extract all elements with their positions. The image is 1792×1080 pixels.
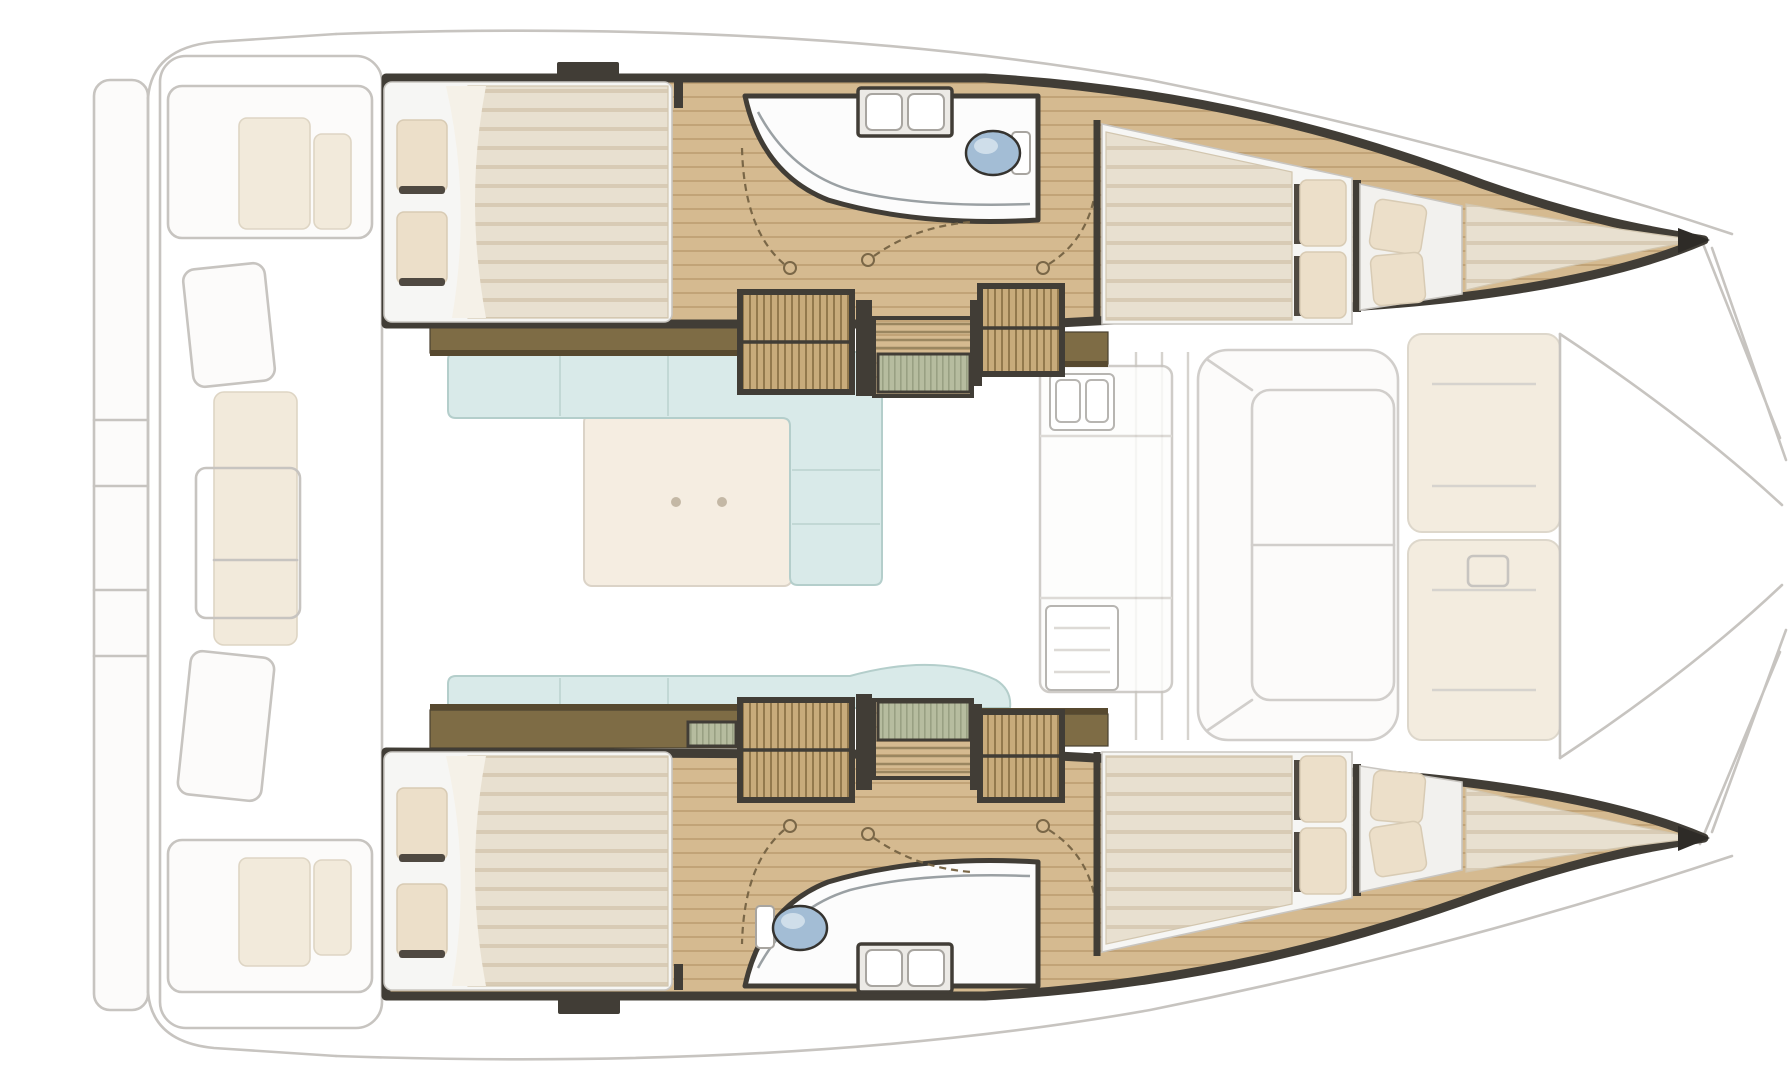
pillow — [1368, 198, 1427, 256]
stair-mat — [878, 702, 970, 740]
door-knob — [1037, 262, 1049, 274]
floor-plan-canvas — [0, 0, 1792, 1080]
aft-cabin-upper — [384, 82, 683, 322]
toilet-highlight — [781, 913, 805, 929]
shelf-upper-aft-edge — [430, 350, 762, 356]
pillow — [397, 788, 447, 860]
stair-post — [856, 300, 872, 396]
toilet — [966, 131, 1030, 175]
wardrobe — [980, 286, 1062, 374]
pillow-shadow — [399, 950, 445, 958]
foredeck-panel — [1408, 540, 1560, 740]
toilet-highlight — [974, 138, 998, 154]
door-knob — [862, 828, 874, 840]
bath-basin — [866, 950, 902, 986]
toilet — [756, 906, 827, 950]
pillow-shadow — [399, 854, 445, 862]
toilet-tank — [756, 906, 774, 948]
stair-post — [856, 694, 872, 790]
bed-mattress — [468, 86, 668, 318]
toilet-bowl — [966, 131, 1020, 175]
galley-stove — [1046, 606, 1118, 690]
pillow — [1300, 252, 1346, 318]
stairs-lower — [874, 700, 972, 778]
cabin-wall-stub — [674, 82, 683, 108]
helm-seat-lower — [177, 650, 276, 802]
door-knob — [784, 820, 796, 832]
pillow-shadow — [399, 278, 445, 286]
galley — [1040, 366, 1172, 692]
door-knob — [784, 262, 796, 274]
bath-basin — [908, 94, 944, 130]
pillow — [397, 884, 447, 956]
aft-cabin-lower — [384, 752, 683, 990]
door-knob — [1037, 820, 1049, 832]
pillow — [1370, 252, 1426, 306]
pillow-shadow — [399, 186, 445, 194]
cabin-wall-stub — [674, 964, 683, 990]
galley-sink-basin — [1086, 380, 1108, 422]
stair-mat — [878, 354, 970, 392]
helm-seat-upper — [182, 262, 276, 388]
pillow — [1370, 770, 1426, 824]
hull-window-upper — [557, 62, 619, 78]
bench-cushion — [314, 134, 351, 229]
hull-window-lower — [558, 998, 620, 1014]
toilet-bowl — [773, 906, 827, 950]
salon-table — [584, 414, 792, 586]
pillow — [1368, 820, 1427, 878]
bench-cushion — [239, 858, 310, 966]
stairs-upper — [874, 318, 972, 396]
pillow — [1300, 756, 1346, 822]
bench-cushion — [239, 118, 310, 229]
bath-basin — [866, 94, 902, 130]
pillow — [1300, 180, 1346, 246]
foredeck-panel — [1408, 334, 1560, 532]
bed-mattress — [468, 756, 668, 986]
stern-steps — [94, 80, 148, 1010]
bath-basin — [908, 950, 944, 986]
entry-mat — [688, 722, 736, 746]
door-knob — [862, 254, 874, 266]
bench-cushion — [314, 860, 351, 955]
pillow — [397, 120, 447, 192]
catamaran-floor-plan — [0, 0, 1792, 1080]
helm-bench-cushion — [214, 392, 297, 645]
galley-sink-basin — [1056, 380, 1080, 422]
shelf-lower-aft-edge — [430, 704, 762, 710]
forward-cockpit-lounge — [1198, 350, 1398, 740]
pillow — [397, 212, 447, 284]
pillow — [1300, 828, 1346, 894]
